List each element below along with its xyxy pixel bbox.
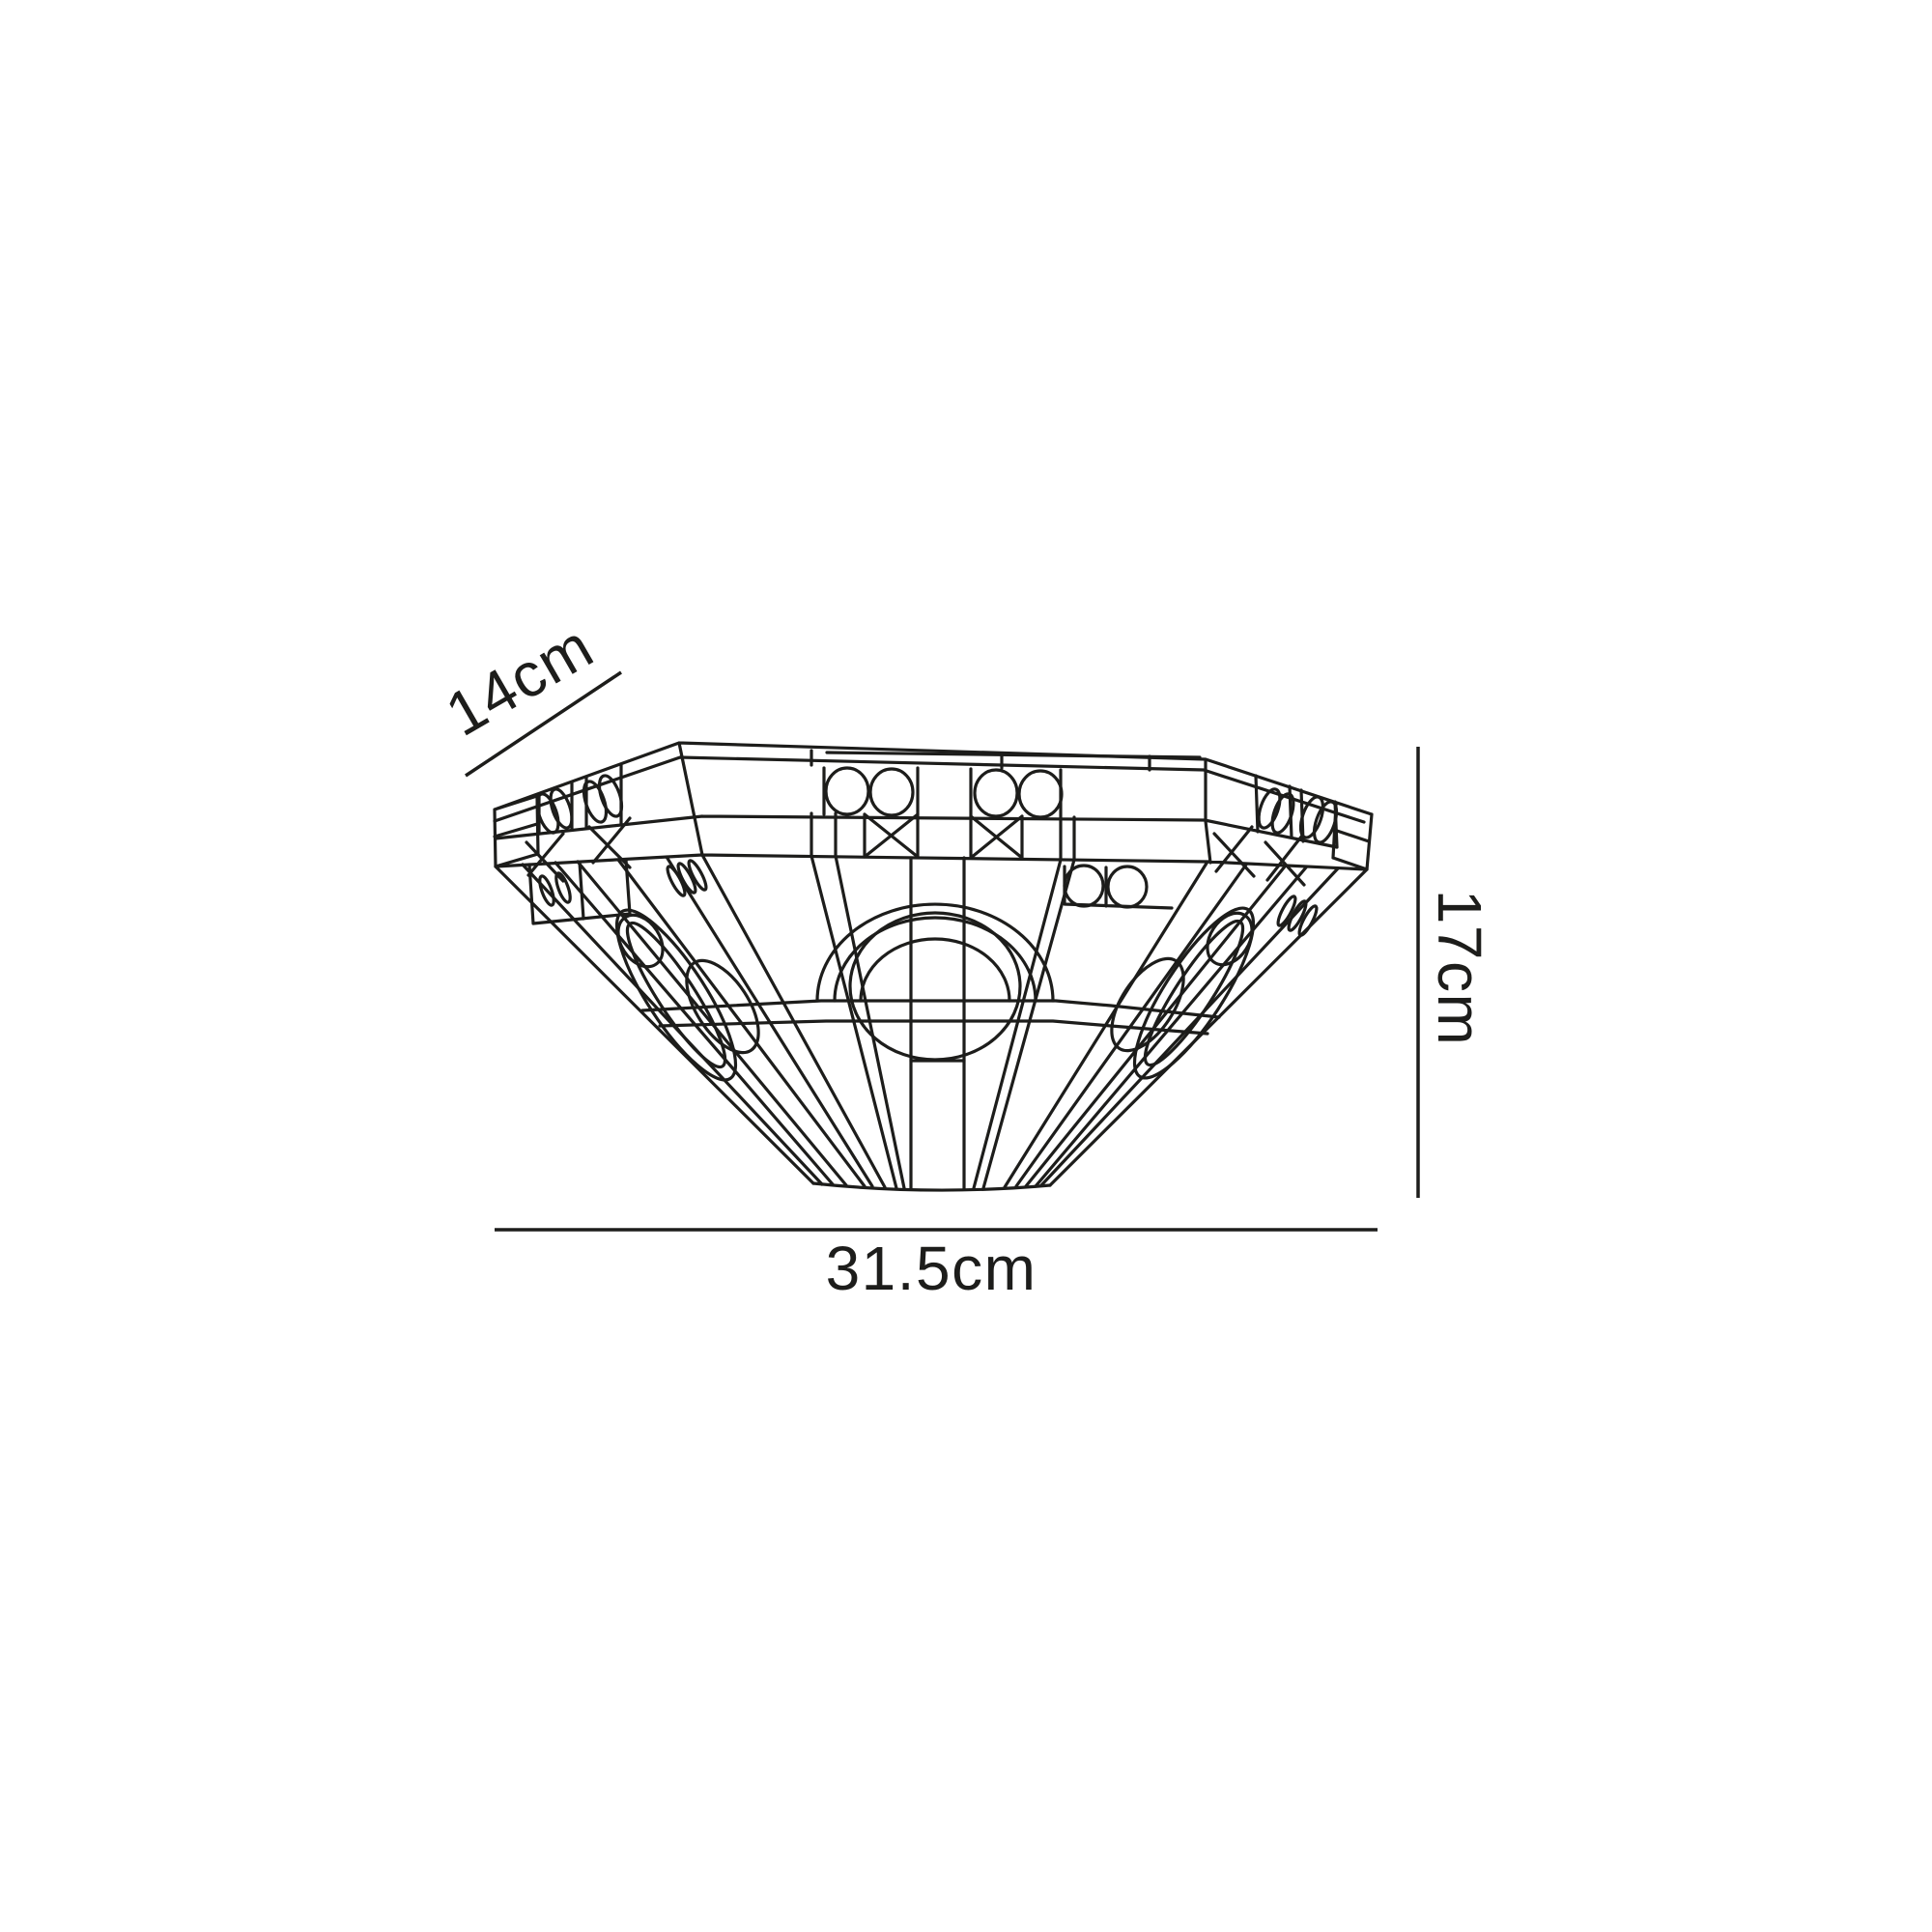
band-circle [826,768,868,814]
centre-circle [850,913,1020,1060]
width-dimension-label: 31.5cm [826,1234,1037,1303]
dimension-diagram: 14cm 17cm 31.5cm [0,0,1932,1932]
shade-drawing [495,743,1372,1190]
base-edge [813,1183,1050,1190]
band-circle [1019,771,1062,817]
band-circle [975,770,1017,816]
height-dimension-label: 17cm [1425,890,1494,1047]
side-ring-right [1097,894,1272,1092]
front-arch [817,904,1053,1061]
product-dimension-diagram-page: 14cm 17cm 31.5cm [0,0,1932,1932]
depth-dimension: 14cm [435,611,621,776]
width-dimension: 31.5cm [495,1230,1378,1303]
depth-dimension-label: 14cm [435,611,606,750]
height-dimension: 17cm [1418,747,1494,1198]
band-circle [870,769,913,815]
belt-band [642,1001,1219,1034]
band-circle [1108,867,1147,907]
rim-outline [495,743,1372,869]
